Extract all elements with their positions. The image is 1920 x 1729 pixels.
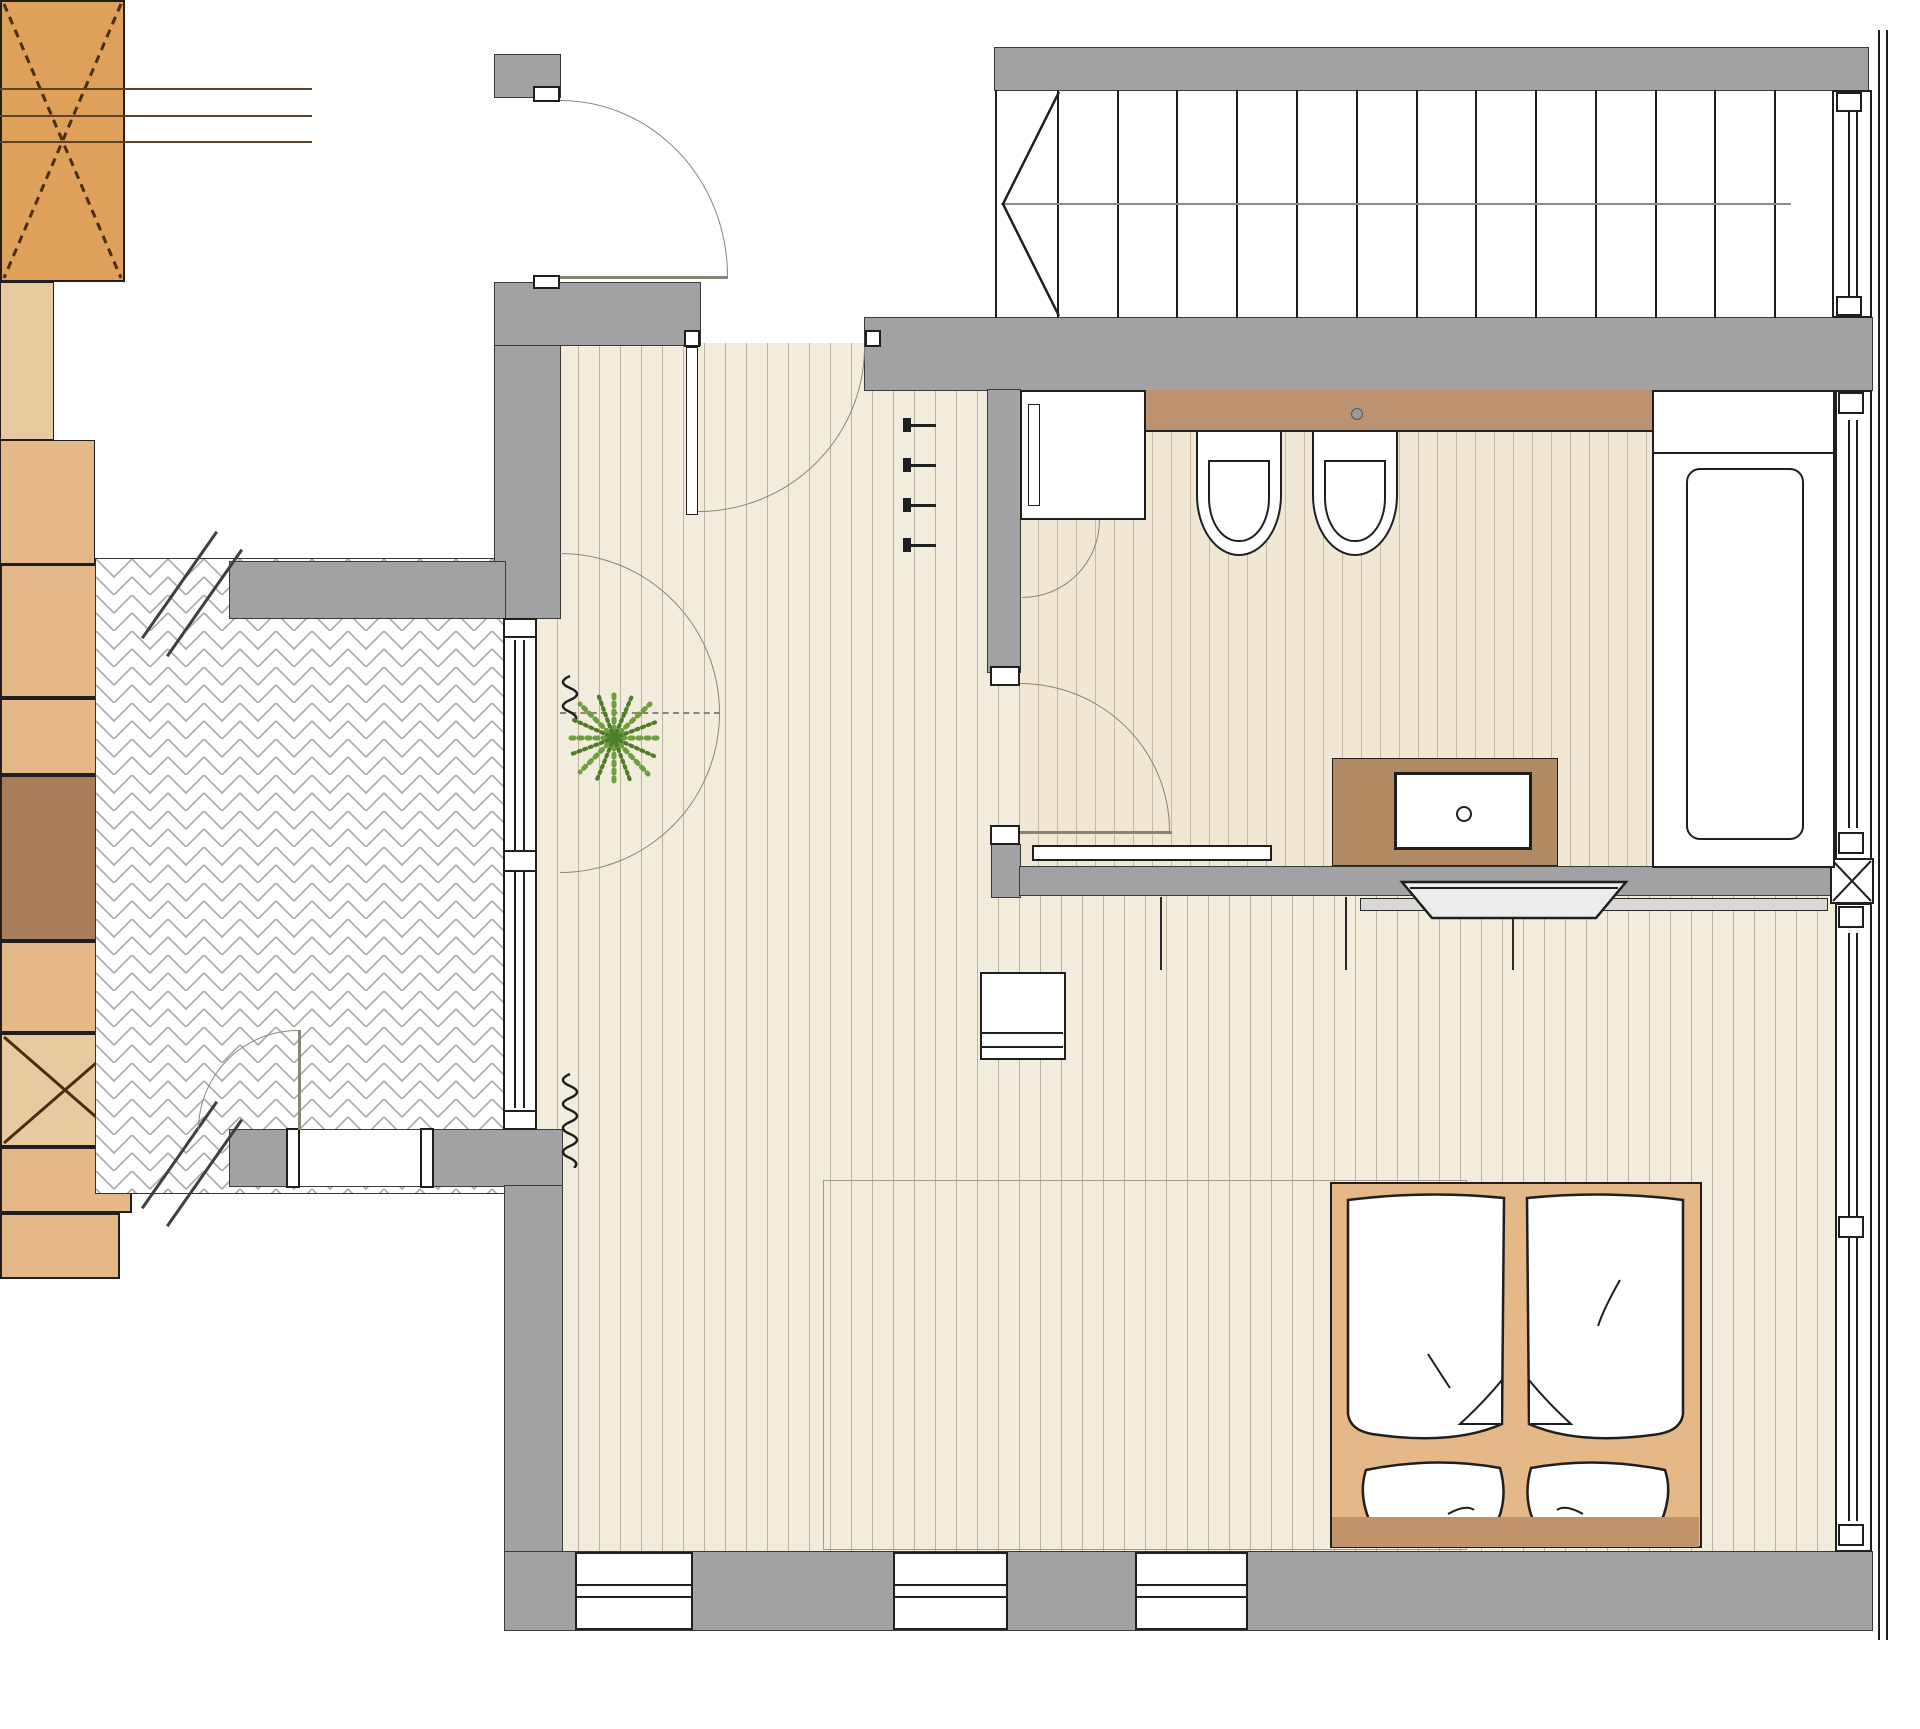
coat-hook-head (903, 538, 911, 552)
nightstand-right (0, 1213, 120, 1279)
towel-rail (1032, 845, 1272, 861)
entry-door-swing (560, 100, 728, 276)
vent-line (1137, 1596, 1246, 1598)
bedroom-window-notch (1838, 906, 1864, 928)
coat-cabinet (0, 440, 95, 564)
stool-slat (982, 1032, 1063, 1034)
bathroom-window-notch (1838, 832, 1864, 854)
vent-line (895, 1584, 1006, 1586)
coat-hook-head (903, 498, 911, 512)
stair-window (1832, 90, 1872, 318)
bathroom-window-glass (1848, 420, 1850, 828)
coat-rack (0, 282, 54, 440)
sofa-slat (0, 141, 312, 143)
column-x (1832, 860, 1872, 902)
bedroom-window-notch (1838, 1524, 1864, 1546)
vent-line (577, 1584, 691, 1586)
bathroom-north-wall (865, 318, 1872, 390)
curtain-symbol (556, 1072, 580, 1168)
entry-door-frame (533, 86, 560, 102)
hall-bath-partition-stub (992, 845, 1020, 897)
terrace-door-opening (300, 1130, 420, 1186)
coat-hook (908, 504, 936, 507)
bathroom-door-frame (990, 825, 1020, 845)
toilet-inner-rim (1324, 460, 1386, 542)
stairs-top-wall (995, 48, 1868, 90)
terrace-window-glass (514, 640, 516, 1108)
hall-door-leaf (686, 347, 698, 515)
hall-bath-partition (988, 390, 1020, 672)
shower-glass-panel (1028, 404, 1040, 506)
hall-door-frame (684, 330, 700, 347)
toilet-flush-button (1351, 408, 1363, 420)
duvet-right (1527, 1194, 1683, 1438)
plant (556, 680, 672, 796)
toilet (1312, 432, 1398, 556)
washbasin-drain (1456, 806, 1472, 822)
bathroom-window (1835, 390, 1872, 860)
bed-linen (1332, 1184, 1699, 1545)
entry-door-frame (533, 275, 560, 289)
floor-plan (0, 0, 1920, 1729)
window-column (1830, 858, 1874, 904)
bathtub (1686, 468, 1804, 840)
coat-hook (908, 464, 936, 467)
bed-footboard (1332, 1517, 1699, 1547)
entry-door-leaf (560, 276, 728, 279)
coat-hook-head (903, 418, 911, 432)
bidet (1196, 432, 1282, 556)
stair-start-arrow (997, 90, 1067, 318)
bidet-inner-rim (1208, 460, 1270, 542)
counter-seam (1160, 897, 1162, 970)
terrace-window-mullion (503, 618, 537, 638)
stool-slat (982, 1046, 1063, 1048)
vent-line (1137, 1584, 1246, 1586)
terrace-window-mullion (503, 850, 537, 872)
coat-hook-head (903, 458, 911, 472)
duvet-left (1348, 1194, 1504, 1438)
hall-door-frame (865, 330, 881, 347)
sofa-slat (0, 115, 312, 117)
exterior-line-outer (1886, 30, 1888, 1640)
south-wall-vent (1135, 1552, 1248, 1630)
sofa-slat (0, 88, 312, 90)
desk-stool (980, 972, 1066, 1060)
terrace-window-mullion (503, 1110, 537, 1130)
coat-hook (908, 424, 936, 427)
double-bed (1330, 1182, 1702, 1548)
bathroom-door-leaf (1020, 831, 1172, 834)
terrace-door-frame (420, 1128, 434, 1188)
stair-window-glass (1848, 112, 1850, 296)
terrace-north-wall (230, 562, 505, 618)
stair-window-frame-notch (1836, 296, 1862, 316)
hall-north-wall (495, 283, 700, 345)
bedroom-window-notch (1838, 1216, 1864, 1238)
herringbone-paving (96, 559, 506, 1193)
west-wall-lower (505, 1186, 562, 1556)
terrace-window (503, 618, 537, 1130)
stair-window-frame-notch (1836, 92, 1862, 112)
terrace-door-leaf (298, 1030, 301, 1130)
stair-window-glass (1856, 112, 1858, 296)
south-wall-vent (893, 1552, 1008, 1630)
bathroom-door-frame (990, 666, 1020, 686)
bathroom-window-notch (1838, 392, 1864, 414)
bathroom-window-glass (1856, 420, 1858, 828)
terrace-window-glass (523, 640, 525, 1108)
tv (1398, 878, 1630, 922)
toilet-ledge (1146, 390, 1670, 432)
stair-direction-line (1001, 203, 1791, 205)
staircase (995, 90, 1836, 318)
bathtub-deck-line (1654, 452, 1833, 454)
coat-hook (908, 544, 936, 547)
terrace-door-frame (286, 1128, 300, 1188)
exterior-line-inner (1878, 30, 1880, 1640)
south-wall-vent (575, 1552, 693, 1630)
vent-line (895, 1596, 1006, 1598)
counter-seam (1345, 897, 1347, 970)
vent-line (577, 1596, 691, 1598)
terrace (95, 558, 507, 1194)
